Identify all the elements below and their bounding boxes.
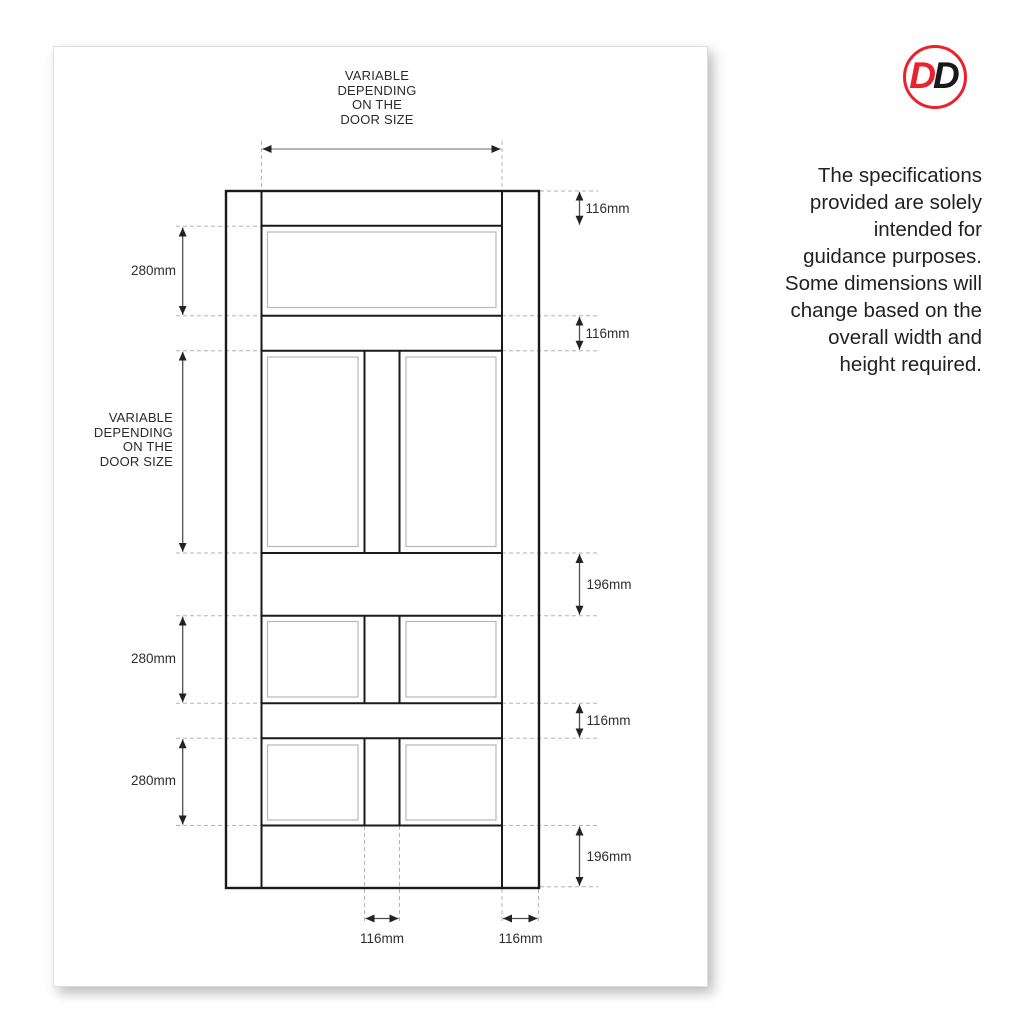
panel-rect-top [268,232,497,308]
label-line: VARIABLE [297,69,457,84]
dim-label-centre-stile: 116mm [352,930,412,948]
door-diagram [0,0,1030,1030]
dim-label-top-panel: 280mm [131,262,176,280]
panel-rect-mid-left [268,622,359,698]
dim-label-top-rail: 116mm [586,200,630,218]
note-line: intended for [662,216,982,243]
door-outer-rect [226,191,539,888]
page: VARIABLE DEPENDING ON THE DOOR SIZE VARI… [0,0,1030,1030]
note-line: Some dimensions will [662,270,982,297]
logo-letter-2: D [933,55,957,96]
door-panels [268,232,497,820]
panel-rect-mid-right [406,622,496,698]
panel-rect-tall-left [268,357,359,547]
dim-label-fourth-rail: 116mm [587,712,631,730]
note-line: guidance purposes. [662,243,982,270]
note-line: height required. [662,351,982,378]
left-height-variable-label: VARIABLE DEPENDING ON THE DOOR SIZE [53,411,173,469]
label-line: DEPENDING [53,426,173,441]
dim-label-right-stile: 116mm [491,930,551,948]
label-line: DOOR SIZE [297,113,457,128]
brand-logo: DD [903,45,967,109]
dim-label-mid-panel: 280mm [131,650,176,668]
label-line: ON THE [53,440,173,455]
label-line: DEPENDING [297,84,457,99]
top-width-variable-label: VARIABLE DEPENDING ON THE DOOR SIZE [297,69,457,127]
dim-label-second-rail: 116mm [586,325,630,343]
panel-rect-tall-right [406,357,496,547]
logo-letters: DD [909,57,956,94]
logo-letter-1: D [909,55,933,96]
panel-rect-low-right [406,745,496,820]
spec-note: The specifications provided are solely i… [662,162,982,378]
label-line: DOOR SIZE [53,455,173,470]
panel-rect-low-left [268,745,359,820]
dimension-arrows [183,149,580,919]
dim-label-bottom-rail: 196mm [587,848,632,866]
note-line: The specifications [662,162,982,189]
note-line: provided are solely [662,189,982,216]
label-line: ON THE [297,98,457,113]
dim-label-middle-rail: 196mm [587,576,632,594]
note-line: overall width and [662,324,982,351]
note-line: change based on the [662,297,982,324]
dim-label-low-panel: 280mm [131,772,176,790]
door-outline [226,191,539,888]
label-line: VARIABLE [53,411,173,426]
extension-lines [176,141,598,921]
